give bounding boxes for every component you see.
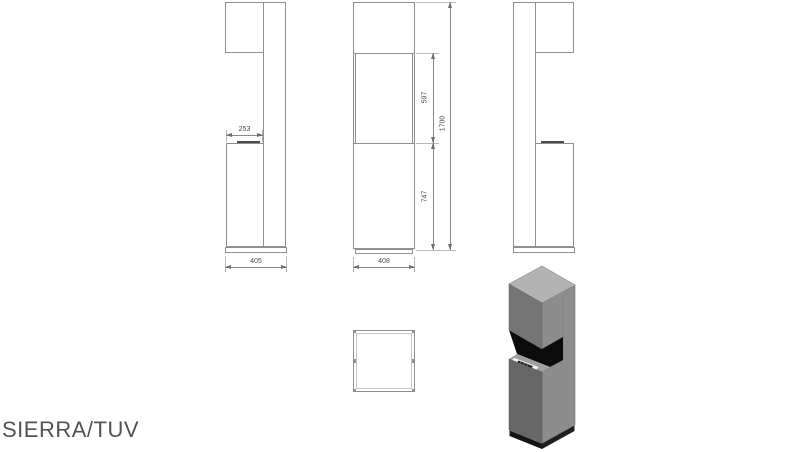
front-view-opening: [355, 53, 413, 144]
arrowhead-icon: [431, 244, 435, 250]
extension-line: [416, 250, 456, 251]
top-view-corner-post: [353, 330, 356, 333]
left-view-lower-box: [226, 143, 264, 247]
right-view-burner-edge: [541, 141, 564, 143]
right-view-base: [513, 247, 575, 253]
extension-line: [416, 143, 439, 144]
isometric-render: [492, 262, 587, 452]
top-view-corner-post: [353, 389, 356, 392]
front-view-bottom-divider: [353, 143, 415, 144]
dim-line-front-depth: [226, 135, 263, 136]
right-view-top-box: [535, 2, 574, 53]
arrowhead-icon: [448, 2, 452, 8]
dim-line-lower-height: [433, 143, 434, 250]
dim-label-total-depth: 405: [225, 257, 287, 266]
arrowhead-icon: [431, 53, 435, 59]
dim-line-total-depth: [225, 267, 287, 268]
product-title: SIERRA/TUV: [2, 417, 139, 443]
left-view-burner-edge: [237, 141, 260, 143]
top-view-side-tick: [412, 359, 415, 363]
left-view-column: [263, 2, 286, 247]
arrowhead-icon: [448, 244, 452, 250]
top-view-side-tick: [353, 359, 356, 363]
dim-line-middle-height: [433, 53, 434, 143]
front-view-base: [355, 249, 413, 254]
drawing-sheet: 253 405 408 597: [0, 0, 800, 450]
top-view-corner-post: [412, 389, 415, 392]
dim-label-width: 408: [353, 257, 415, 266]
dim-line-width: [353, 267, 415, 268]
dim-label-lower-height: 747: [421, 177, 430, 217]
left-view-top-box: [225, 2, 264, 53]
dim-label-front-depth: 253: [226, 125, 263, 134]
extension-line: [416, 53, 439, 54]
top-view-corner-post: [412, 330, 415, 333]
dim-line-total-height: [450, 2, 451, 250]
dim-label-middle-height: 597: [421, 78, 430, 118]
arrowhead-icon: [431, 143, 435, 149]
dim-label-total-height: 1700: [439, 104, 448, 144]
right-view-column: [513, 2, 536, 247]
iso-lower-box-front-face: [509, 359, 542, 443]
left-view-base: [225, 247, 287, 253]
right-view-lower-box: [535, 143, 574, 247]
top-view-inner: [356, 333, 412, 389]
